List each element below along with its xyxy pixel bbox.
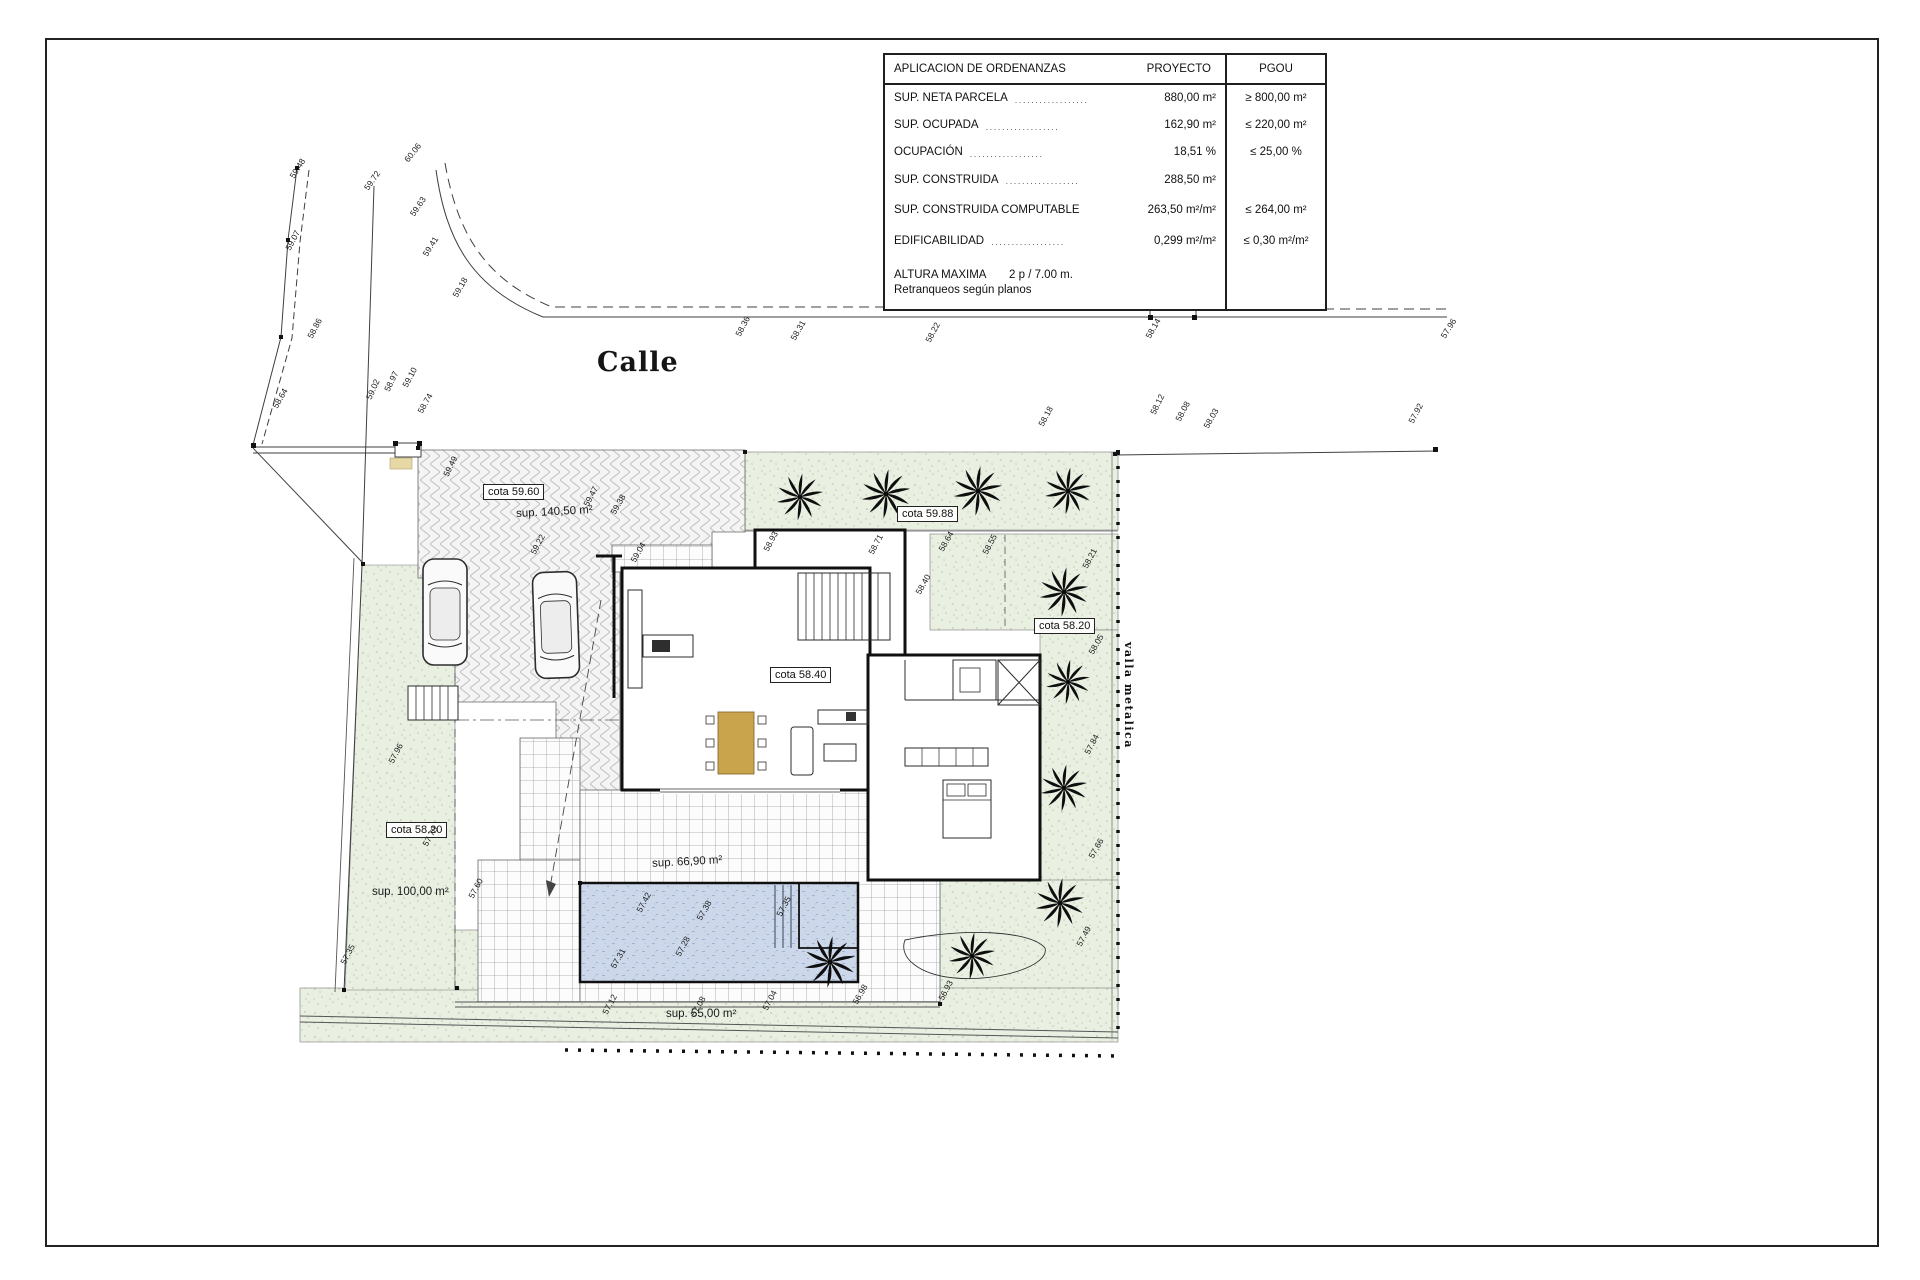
ordinance-table: APLICACION DE ORDENANZAS PROYECTO PGOU S… [883, 53, 1327, 311]
altura-maxima-value: 2 p / 7.00 m. [1009, 269, 1073, 281]
table-footer: ALTURA MAXIMA 2 p / 7.00 m. Retranqueos … [885, 256, 1225, 309]
pgou-value: ≤ 264,00 m² [1225, 194, 1325, 226]
cota-garden-north-label: cota 59.88 [897, 506, 958, 522]
pgou-value [1225, 166, 1325, 194]
row-label: SUP. CONSTRUIDA COMPUTABLE [894, 204, 1080, 217]
altura-maxima-label: ALTURA MAXIMA [894, 269, 986, 281]
table-row: SUP. OCUPADA .................. 162,90 m… [885, 112, 1225, 139]
pgou-value: ≤ 0,30 m²/m² [1225, 226, 1325, 256]
ordinance-table-header: APLICACION DE ORDENANZAS PROYECTO [885, 55, 1225, 85]
car-icon [532, 571, 580, 678]
row-value: 263,50 m²/m² [1128, 204, 1216, 217]
row-label: SUP. CONSTRUIDA [894, 174, 999, 187]
row-value: 0,299 m²/m² [1128, 235, 1216, 248]
row-label: SUP. OCUPADA [894, 119, 979, 132]
leader-dots: .................. [970, 150, 1121, 160]
table-row: SUP. CONSTRUIDA COMPUTABLE 263,50 m²/m² [885, 194, 1225, 226]
retranqueos-note: Retranqueos según planos [894, 283, 1031, 298]
table-title: APLICACION DE ORDENANZAS [894, 63, 1066, 76]
leader-dots: .................. [991, 238, 1121, 248]
row-value: 18,51 % [1128, 146, 1216, 159]
row-value: 162,90 m² [1128, 119, 1216, 132]
row-label: OCUPACIÓN [894, 146, 963, 159]
pgou-value: ≥ 800,00 m² [1225, 85, 1325, 112]
car-icon [423, 559, 467, 665]
row-value: 288,50 m² [1128, 174, 1216, 187]
leader-dots: .................. [1006, 177, 1121, 187]
row-label: EDIFICABILIDAD [894, 235, 984, 248]
pgou-value: ≤ 25,00 % [1225, 139, 1325, 166]
table-row: SUP. CONSTRUIDA .................. 288,5… [885, 166, 1225, 194]
col-pgou: PGOU [1225, 55, 1325, 85]
table-row: SUP. NETA PARCELA .................. 880… [885, 85, 1225, 112]
pgou-footer-empty [1225, 256, 1325, 309]
table-row: EDIFICABILIDAD .................. 0,299 … [885, 226, 1225, 256]
pgou-value: ≤ 220,00 m² [1225, 112, 1325, 139]
table-row: OCUPACIÓN .................. 18,51 % [885, 139, 1225, 166]
cota-garden-east-label: cota 58.20 [1034, 618, 1095, 634]
entrance-kerb-marker [390, 458, 412, 469]
row-value: 880,00 m² [1128, 92, 1216, 105]
site-plan-sheet: APLICACION DE ORDENANZAS PROYECTO PGOU S… [0, 0, 1920, 1280]
sup-garden-west-label: sup. 100,00 m² [372, 886, 449, 898]
street-name-label: Calle [597, 347, 679, 378]
leader-dots: .................. [986, 123, 1121, 133]
leader-dots: .................. [1015, 96, 1121, 106]
metal-fence-label: valla metalica [1122, 642, 1135, 749]
cota-driveway-label: cota 59.60 [483, 484, 544, 500]
cota-house-label: cota 58.40 [770, 667, 831, 683]
row-label: SUP. NETA PARCELA [894, 92, 1008, 105]
col-proyecto: PROYECTO [1147, 63, 1211, 76]
